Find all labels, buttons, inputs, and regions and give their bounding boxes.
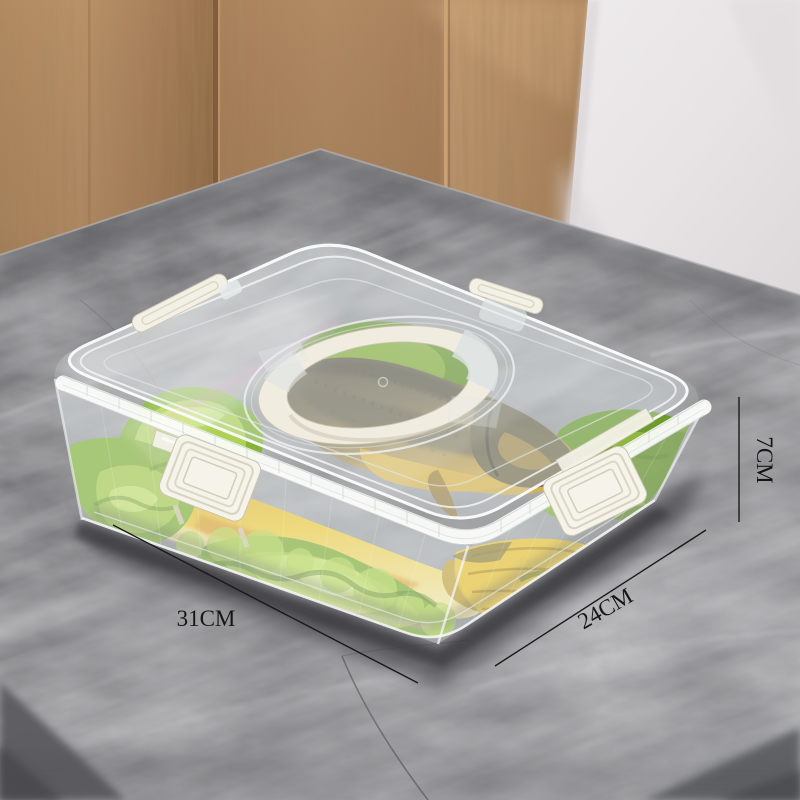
svg-text:7CM: 7CM bbox=[752, 436, 777, 483]
svg-text:31CM: 31CM bbox=[177, 606, 236, 631]
